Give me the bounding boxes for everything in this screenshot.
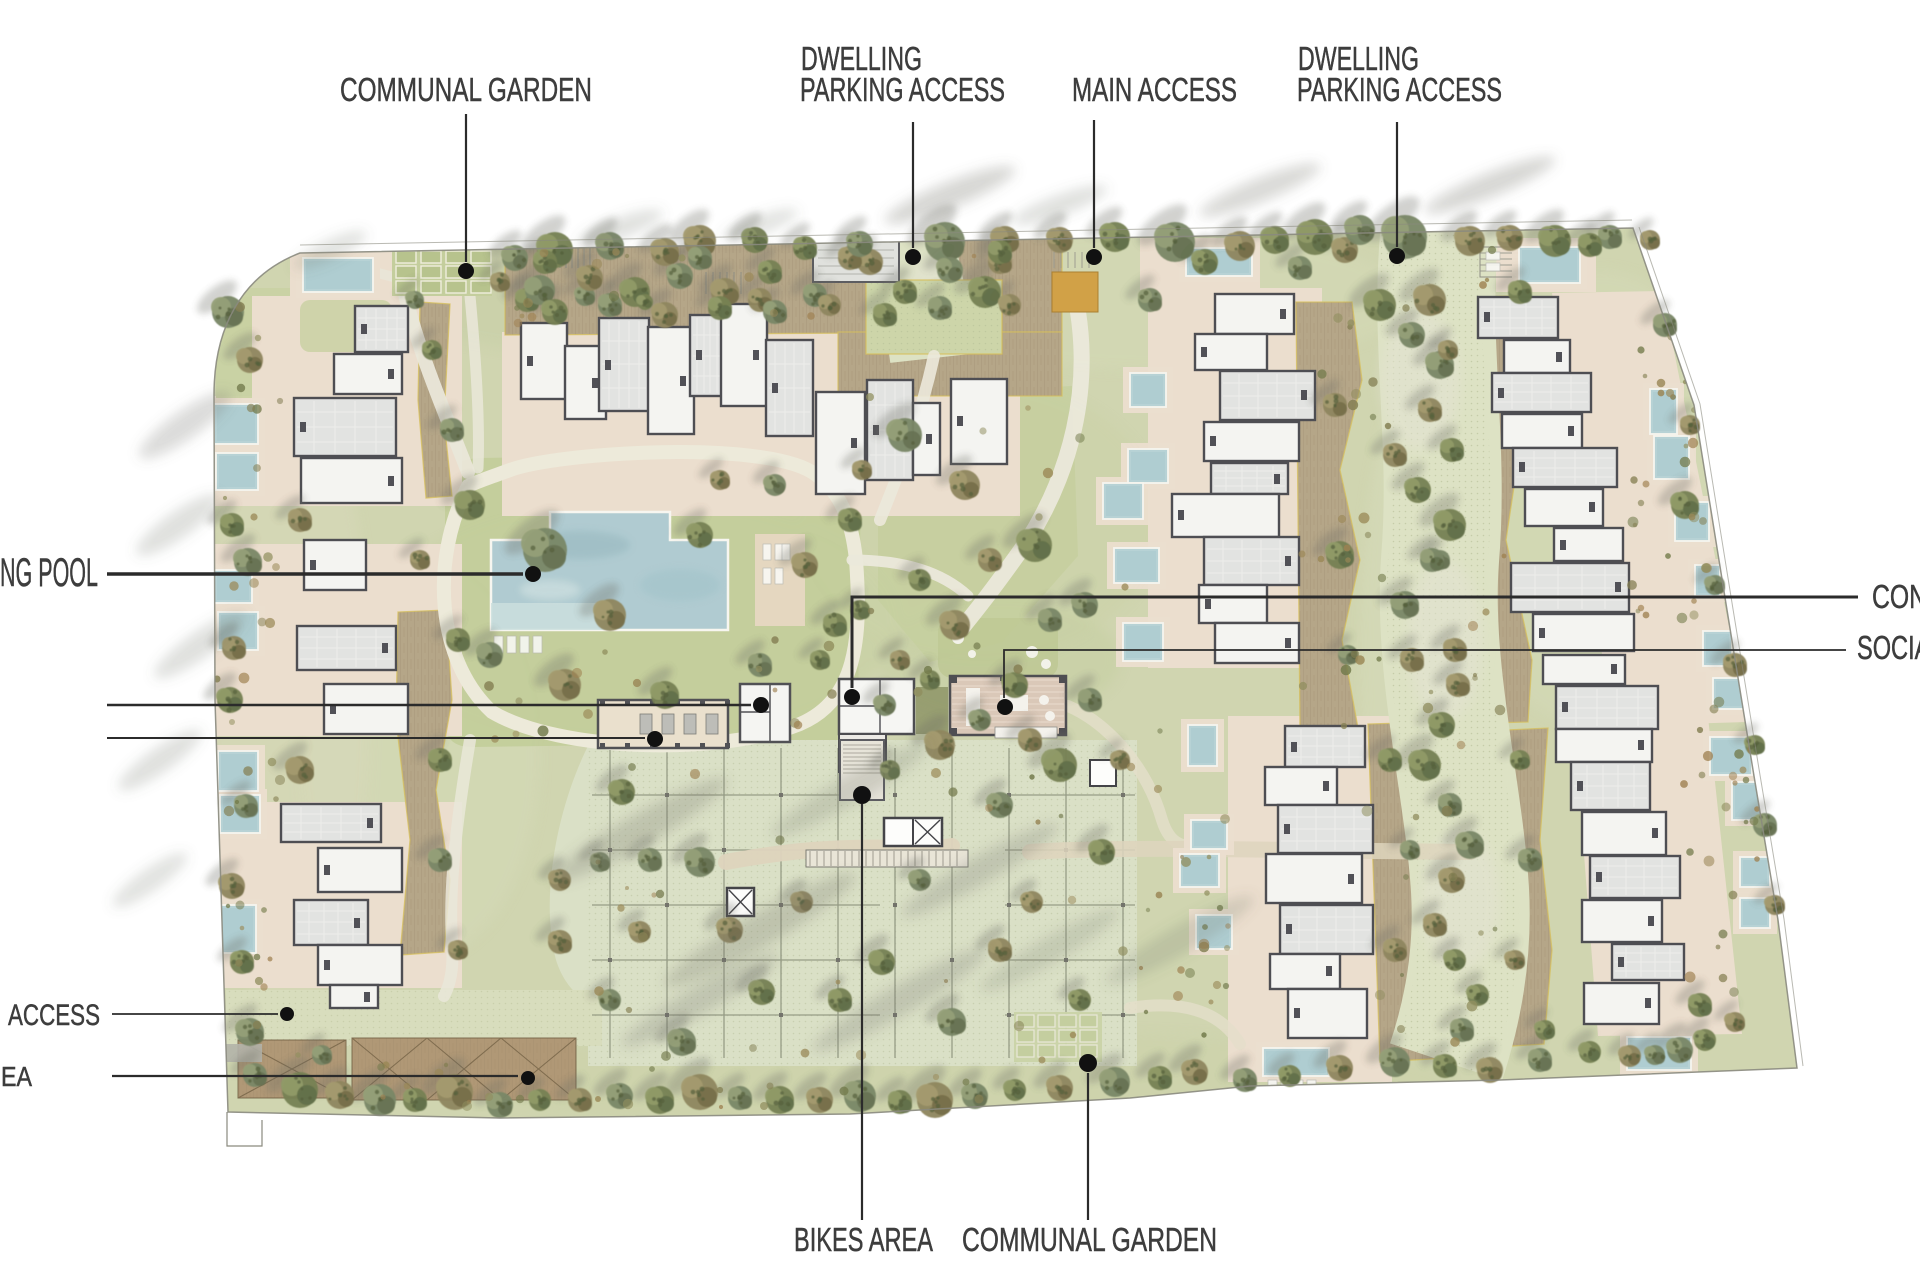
svg-text:ACCESS: ACCESS — [8, 999, 100, 1032]
svg-text:BIKES AREA: BIKES AREA — [794, 1221, 933, 1258]
svg-text:EA: EA — [1, 1061, 32, 1092]
svg-text:COMMUNAL GARDEN: COMMUNAL GARDEN — [962, 1221, 1217, 1258]
svg-text:SOCIAL CLUB: SOCIAL CLUB — [1857, 629, 1920, 666]
svg-text:COMMUNAL GARDEN: COMMUNAL GARDEN — [340, 71, 592, 108]
svg-text:PARKING ACCESS: PARKING ACCESS — [1297, 71, 1502, 108]
svg-text:PARKING ACCESS: PARKING ACCESS — [800, 71, 1005, 108]
svg-text:CONCIERGE: CONCIERGE — [1872, 578, 1920, 615]
svg-text:NG POOL: NG POOL — [0, 551, 98, 595]
svg-text:MAIN ACCESS: MAIN ACCESS — [1072, 71, 1237, 108]
